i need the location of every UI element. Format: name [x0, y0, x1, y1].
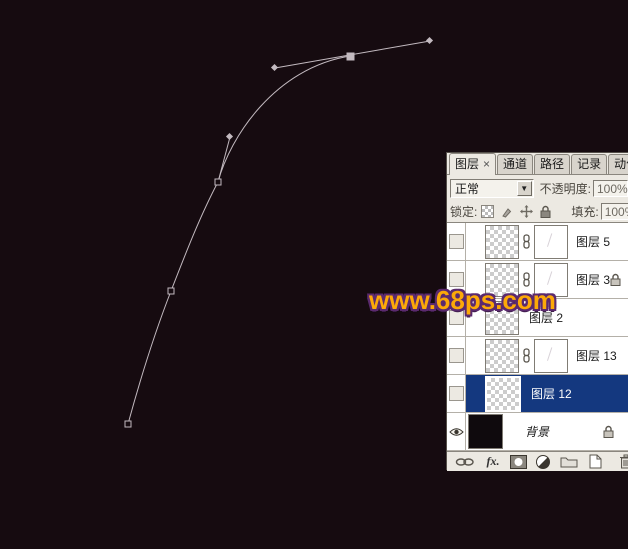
pen-curve — [128, 56, 350, 424]
layer-name[interactable]: 图层 13 — [576, 347, 617, 364]
eye-well-empty — [449, 234, 464, 249]
anchor-point-selected[interactable] — [347, 53, 354, 60]
layer-thumbnail[interactable] — [485, 376, 521, 412]
tab-history[interactable]: 记录 — [571, 154, 607, 174]
layer-thumbnail[interactable] — [485, 225, 519, 259]
visibility-toggle[interactable] — [447, 223, 466, 260]
delete-layer-icon[interactable] — [614, 453, 628, 471]
blend-mode-row: 正常 ▼ 不透明度: 100% — [447, 175, 628, 201]
layer-row-selected[interactable]: 图层 12 — [447, 375, 628, 413]
eye-well-empty — [449, 348, 464, 363]
link-layers-icon[interactable] — [450, 453, 480, 471]
new-layer-icon[interactable] — [582, 453, 608, 471]
new-group-icon[interactable] — [556, 453, 582, 471]
layer-mask-thumbnail[interactable] — [534, 225, 568, 259]
tab-layers-label: 图层 — [455, 157, 479, 171]
handle-point[interactable] — [271, 64, 278, 71]
lock-all-icon[interactable] — [540, 205, 551, 218]
lock-transparency-icon[interactable] — [481, 205, 494, 218]
opacity-label: 不透明度: — [540, 180, 591, 197]
anchor-point[interactable] — [215, 179, 221, 185]
layer-style-icon[interactable]: fx. — [480, 453, 506, 471]
blend-mode-value: 正常 — [451, 180, 517, 197]
lock-icons — [481, 205, 551, 218]
layer-name[interactable]: 图层 3 — [576, 271, 610, 288]
handle-point[interactable] — [226, 133, 233, 140]
adjustment-layer-icon[interactable] — [530, 453, 556, 471]
mask-link-icon[interactable] — [522, 348, 531, 363]
eye-icon[interactable] — [449, 427, 464, 437]
anchor-point[interactable] — [125, 421, 131, 427]
layer-row[interactable]: 图层 5 — [447, 223, 628, 261]
lock-position-icon[interactable] — [520, 205, 533, 218]
tab-paths-label: 路径 — [540, 157, 564, 171]
layer-name[interactable]: 图层 12 — [531, 385, 572, 402]
tab-actions[interactable]: 动作 — [608, 154, 628, 174]
visibility-toggle[interactable] — [447, 375, 466, 412]
layers-list: 图层 5 图层 3 图层 2 — [447, 222, 628, 451]
layer-thumbnail[interactable] — [485, 339, 519, 373]
tab-close-icon[interactable]: × — [483, 157, 490, 171]
lock-row: 锁定: 填充: 100% — [447, 201, 628, 222]
layer-row[interactable]: 图层 13 — [447, 337, 628, 375]
tab-history-label: 记录 — [577, 157, 601, 171]
add-mask-icon[interactable] — [506, 453, 530, 471]
opacity-field[interactable]: 100% — [593, 180, 628, 197]
panel-tab-strip: 图层× 通道 路径 记录 动作 — [447, 153, 628, 175]
anchor-point[interactable] — [168, 288, 174, 294]
panel-bottom-bar: fx. — [447, 451, 628, 471]
lock-paint-icon[interactable] — [501, 206, 513, 218]
layer-thumbnail[interactable] — [468, 414, 503, 449]
blend-mode-select[interactable]: 正常 ▼ — [450, 179, 534, 198]
fill-field[interactable]: 100% — [601, 203, 628, 220]
layer-mask-thumbnail[interactable] — [534, 339, 568, 373]
fx-label: fx. — [487, 454, 500, 469]
eye-well-empty — [449, 386, 464, 401]
watermark: www.68ps.com — [369, 285, 556, 316]
mask-link-icon[interactable] — [522, 234, 531, 249]
tab-channels-label: 通道 — [503, 157, 527, 171]
visibility-toggle[interactable] — [447, 337, 466, 374]
layer-name[interactable]: 图层 5 — [576, 233, 610, 250]
tab-channels[interactable]: 通道 — [497, 154, 533, 174]
layer-row-background[interactable]: 背景 — [447, 413, 628, 451]
lock-label: 锁定: — [450, 203, 477, 220]
layer-lock-icon — [610, 273, 621, 286]
layer-lock-icon — [603, 425, 614, 438]
fill-label: 填充: — [571, 203, 598, 220]
layer-name[interactable]: 背景 — [525, 423, 549, 440]
handle-point[interactable] — [426, 37, 433, 44]
visibility-toggle[interactable] — [447, 413, 466, 450]
tab-actions-label: 动作 — [614, 157, 628, 171]
chevron-down-icon[interactable]: ▼ — [517, 181, 532, 196]
tab-layers[interactable]: 图层× — [449, 153, 496, 175]
direction-handle-line — [218, 137, 230, 182]
tab-paths[interactable]: 路径 — [534, 154, 570, 174]
